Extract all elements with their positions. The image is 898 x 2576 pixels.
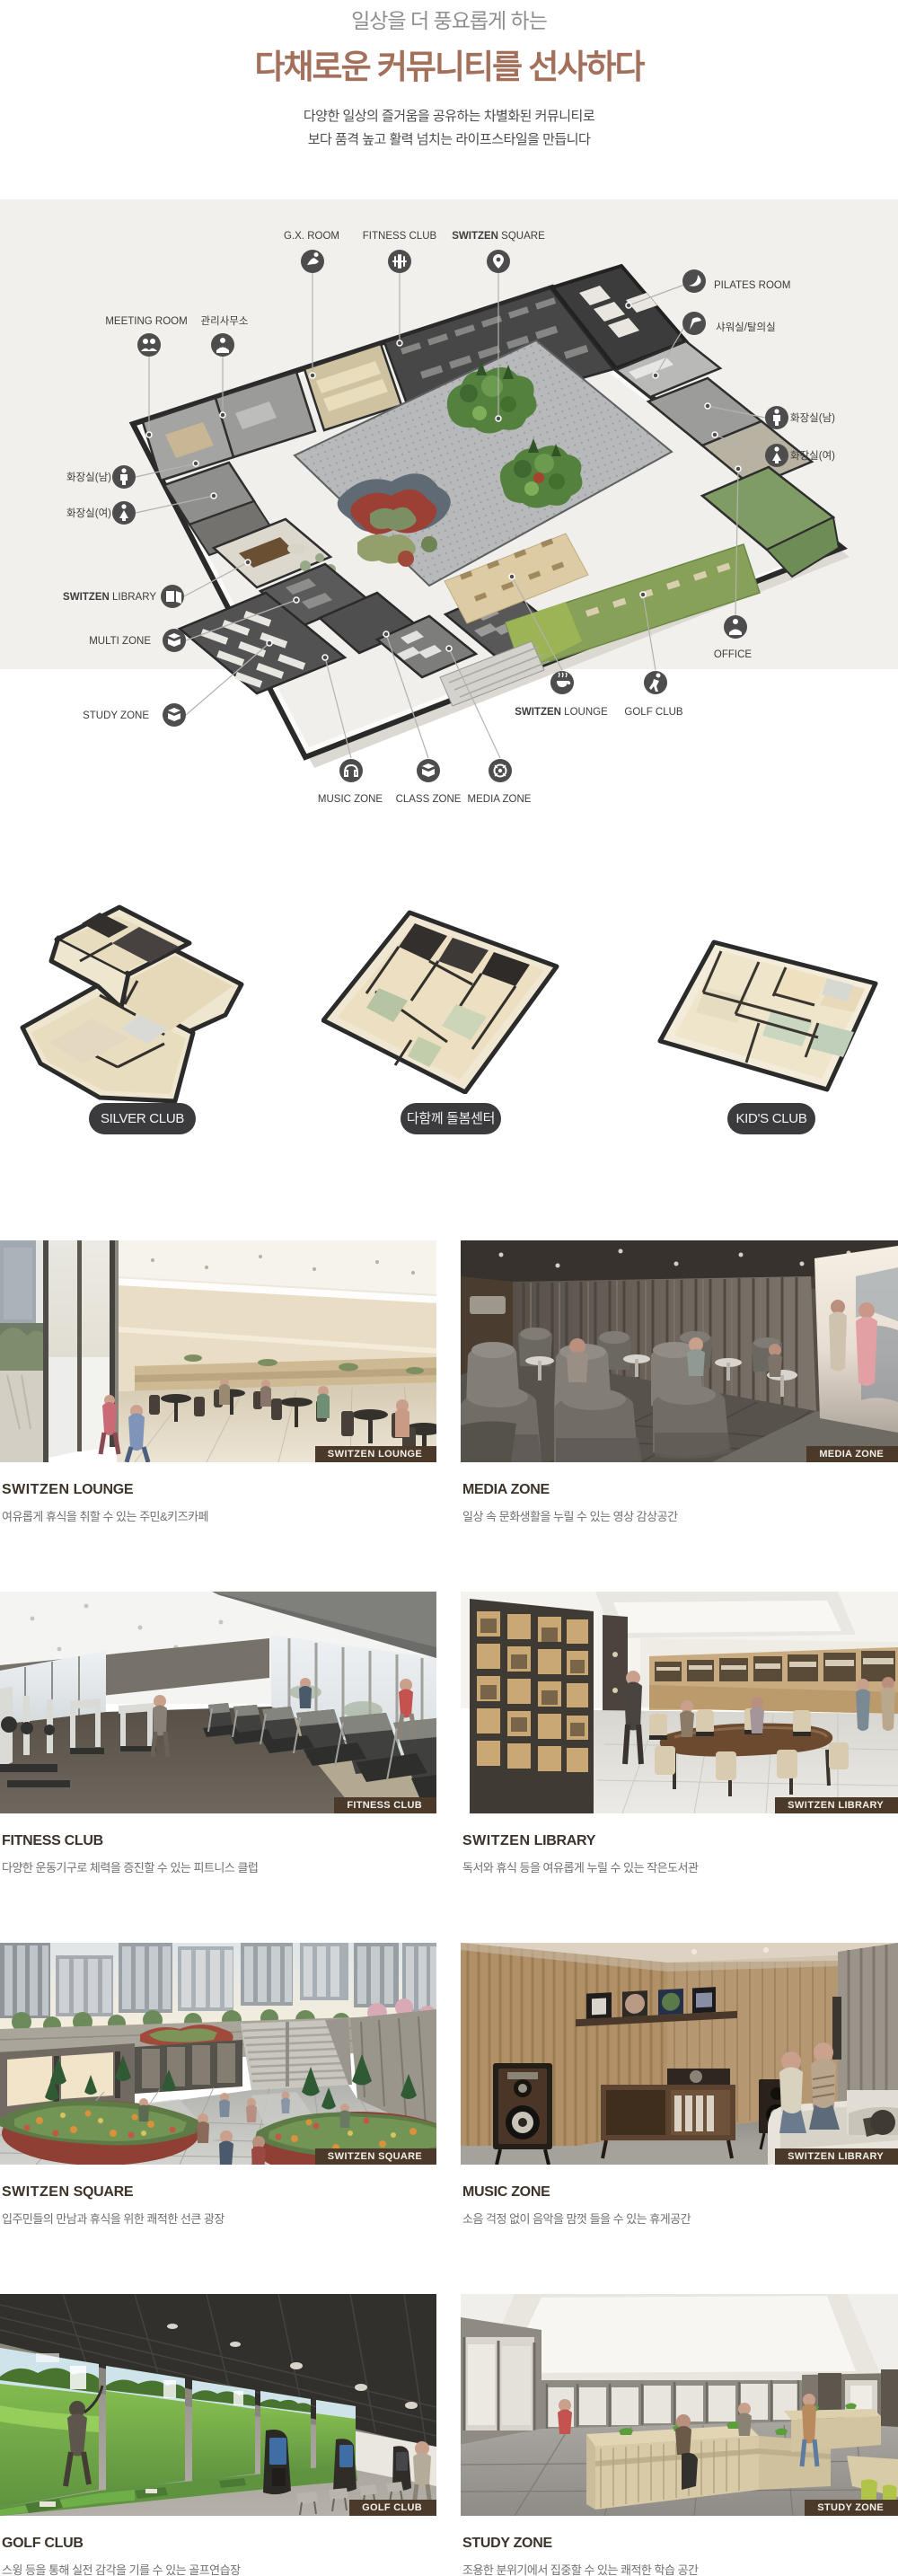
svg-text:화장실(여): 화장실(여): [66, 507, 111, 519]
svg-text:화장실(남): 화장실(남): [790, 412, 835, 424]
svg-text:STUDY ZONE: STUDY ZONE: [83, 710, 149, 721]
svg-text:G.X. ROOM: G.X. ROOM: [284, 231, 339, 242]
svg-text:화장실(남): 화장실(남): [66, 472, 111, 483]
svg-text:OFFICE: OFFICE: [714, 649, 752, 660]
svg-text:CLASS ZONE: CLASS ZONE: [396, 794, 462, 805]
svg-text:PILATES ROOM: PILATES ROOM: [714, 280, 790, 291]
svg-text:MEDIA ZONE: MEDIA ZONE: [468, 794, 532, 805]
svg-text:관리사무소: 관리사무소: [201, 315, 249, 327]
svg-text:MUSIC ZONE: MUSIC ZONE: [318, 794, 383, 805]
svg-text:SWITZEN SQUARE: SWITZEN SQUARE: [452, 231, 545, 242]
svg-text:MEETING ROOM: MEETING ROOM: [105, 316, 187, 327]
svg-text:샤워실/탈의실: 샤워실/탈의실: [716, 321, 776, 333]
svg-text:GOLF CLUB: GOLF CLUB: [624, 707, 683, 718]
svg-text:SWITZEN LIBRARY: SWITZEN LIBRARY: [63, 592, 156, 603]
svg-text:SWITZEN LOUNGE: SWITZEN LOUNGE: [515, 707, 608, 718]
svg-text:FITNESS CLUB: FITNESS CLUB: [363, 231, 437, 242]
svg-text:화장실(여): 화장실(여): [790, 450, 835, 462]
svg-text:MULTI ZONE: MULTI ZONE: [89, 636, 151, 647]
